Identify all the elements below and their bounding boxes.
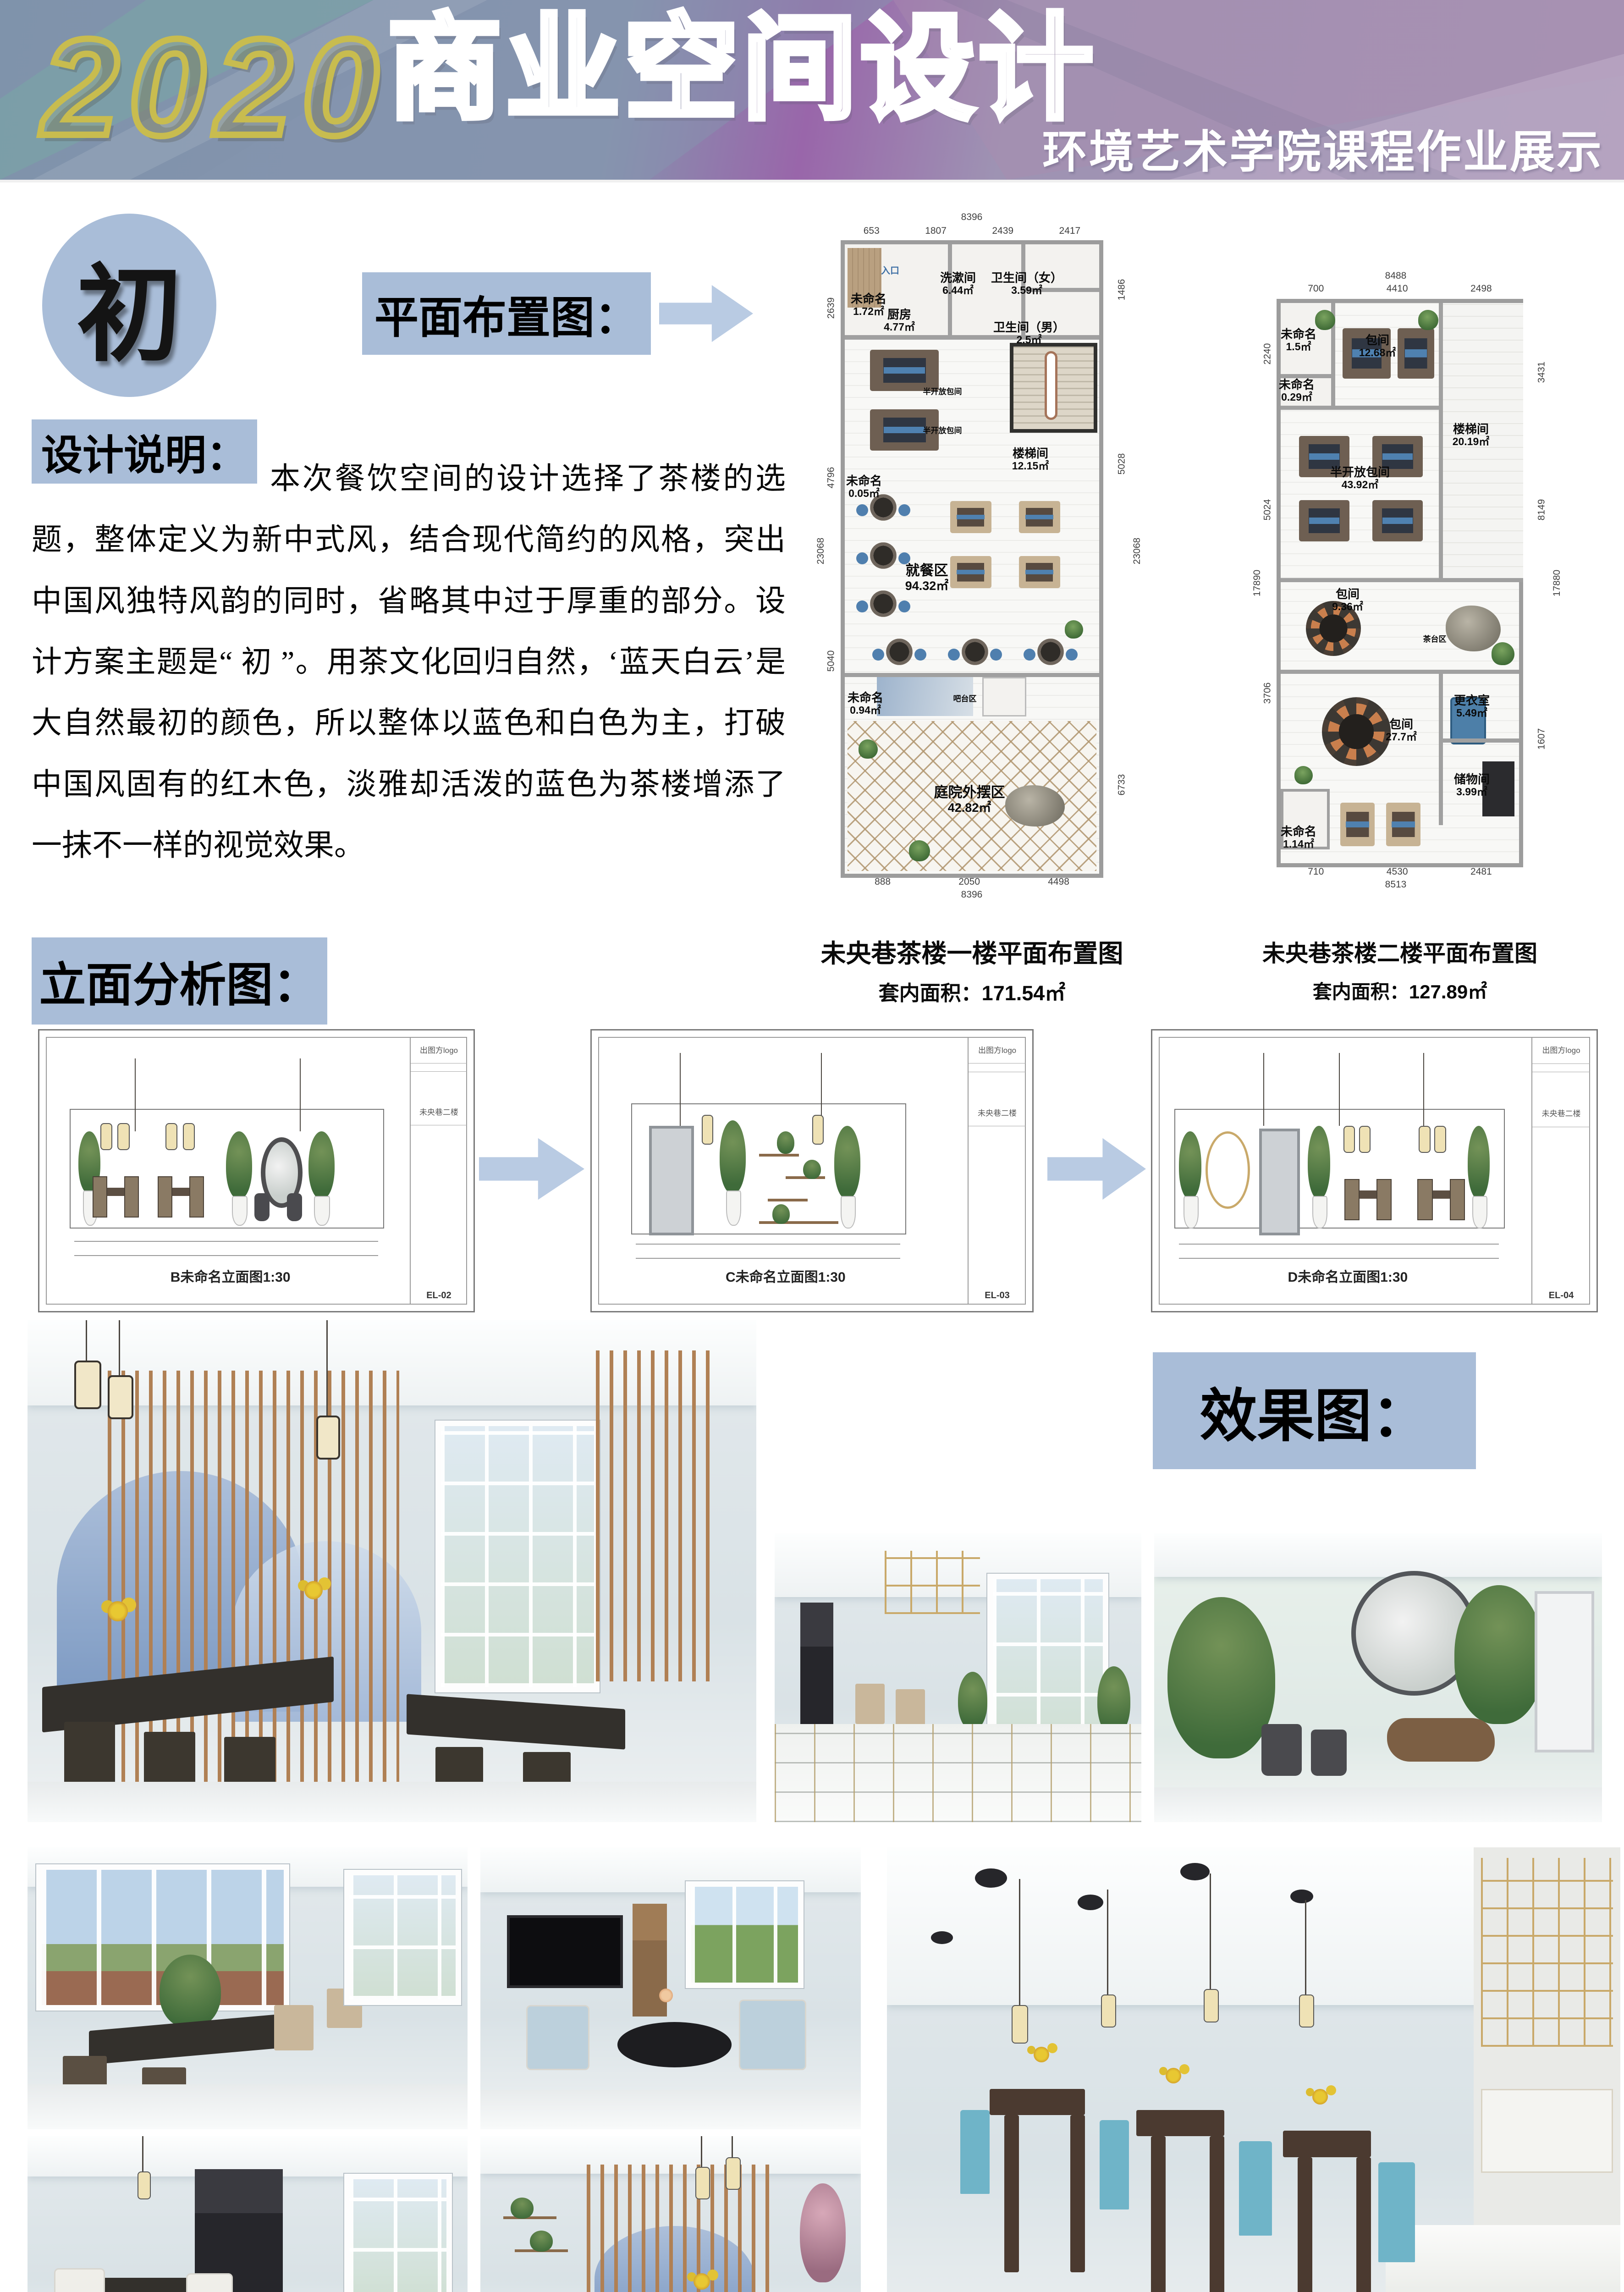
theme-badge: 初 xyxy=(42,214,216,397)
elevation-door xyxy=(1259,1129,1300,1235)
room-label: 吧台区 xyxy=(953,694,977,703)
fp2-plant xyxy=(1418,310,1438,330)
pendant-cord xyxy=(701,2136,702,2169)
table-leg xyxy=(1070,2115,1085,2273)
entry-label: 入口 xyxy=(881,266,899,276)
render-private-dining xyxy=(28,2136,468,2292)
room-label: 洗漱间6.44㎡ xyxy=(940,271,976,297)
dim-left: 4796 xyxy=(826,467,837,489)
dim-right: 1607 xyxy=(1536,728,1547,750)
fp1-stair-rail xyxy=(1045,351,1057,420)
lantern-pendant xyxy=(165,1123,178,1150)
fp2-table-group xyxy=(1386,803,1420,846)
pendant-cord xyxy=(142,2136,143,2174)
title-block: 出图方logo 未央巷二楼 EL-02 xyxy=(410,1037,467,1305)
gold-display-shelf xyxy=(1481,1858,1613,2047)
elevation-caption: C未命名立面图1:30 xyxy=(627,1266,944,1286)
yellow-flowers xyxy=(1034,2047,1049,2062)
dim-right: 1486 xyxy=(1116,279,1127,301)
elevation-stool xyxy=(254,1193,270,1221)
elevation-sheet-c: C未命名立面图1:30 出图方logo 未央巷二楼 EL-03 xyxy=(590,1029,1034,1312)
table-leg xyxy=(1210,2136,1224,2292)
room-label: 包间27.7㎡ xyxy=(1386,718,1417,743)
tall-table xyxy=(1283,2131,1371,2157)
pendant-cord xyxy=(1210,1873,1211,2000)
render-grand-tea-hall xyxy=(887,1847,1620,2292)
yellow-flowers xyxy=(108,1601,128,1621)
pendant-light xyxy=(1204,1989,1219,2022)
header-banner: 2020 商业空间设计 环境艺术学院课程作业展示 xyxy=(0,0,1624,182)
fp1-round-table xyxy=(886,639,913,665)
elevation-plant xyxy=(226,1131,252,1199)
shelf-plant xyxy=(777,1131,794,1154)
room-label: 未命名1.14㎡ xyxy=(1281,825,1316,850)
design-note-paragraph: 本次餐饮空间的设计选择了茶楼的选题，整体定义为新中式风，结合现代简约的风格，突出… xyxy=(32,448,786,876)
room-label: 卫生间（女）3.59㎡ xyxy=(991,271,1062,297)
dim-right: 3431 xyxy=(1536,362,1547,383)
fp2-tea-rock xyxy=(1446,606,1501,651)
dim-line xyxy=(1179,1244,1499,1245)
render-balcony-dining xyxy=(28,1847,468,2129)
table-leg xyxy=(1004,2115,1019,2273)
lantern-pendant xyxy=(183,1123,195,1150)
elevation-chair xyxy=(124,1176,139,1218)
dim-leader xyxy=(1263,1053,1264,1126)
armchair xyxy=(739,2000,806,2070)
elevation-plant xyxy=(1308,1126,1330,1199)
room-label: 茶台区 xyxy=(1423,635,1447,644)
window xyxy=(686,1881,803,1988)
white-chair xyxy=(186,2273,233,2292)
elevation-caption: B未命名立面图1:30 xyxy=(74,1266,387,1286)
fp2-table-group xyxy=(1398,328,1434,379)
shelf-plant xyxy=(772,1204,790,1224)
elevation-chair xyxy=(1450,1179,1465,1220)
plant xyxy=(160,1955,221,2028)
blue-chair xyxy=(960,2110,990,2194)
armchair xyxy=(526,2005,590,2070)
elevation-door xyxy=(649,1126,694,1235)
table-leg xyxy=(1151,2136,1166,2292)
dim-left: 2240 xyxy=(1262,343,1273,365)
floor-plan-1-caption: 未央巷茶楼一楼平面布置图 xyxy=(818,933,1126,970)
design-note-label: 设计说明： xyxy=(32,419,257,484)
fp1-rock-feature xyxy=(1005,785,1065,826)
lantern-pendant xyxy=(702,1115,713,1145)
fp2-table-group xyxy=(1372,500,1423,541)
dim-top-total: 8396 xyxy=(961,212,983,223)
room-label: 未命名1.5㎡ xyxy=(1281,328,1316,353)
blue-chair xyxy=(1239,2141,1272,2236)
elevation-stool xyxy=(287,1193,302,1221)
gold-rod-screen xyxy=(587,2165,769,2292)
elevation-vase xyxy=(232,1196,248,1226)
lantern-pendant xyxy=(1359,1126,1371,1153)
room-label: 就餐区94.32㎡ xyxy=(905,563,949,593)
floor xyxy=(1154,1787,1602,1822)
plant xyxy=(958,1672,987,1730)
dim-leader xyxy=(135,1058,136,1131)
fp1-bar-counter xyxy=(982,677,1026,716)
fp1-round-table xyxy=(870,590,897,617)
fp1-table-group xyxy=(950,556,991,588)
fp2-wall xyxy=(1281,406,1439,410)
dim-bottom-total: 8513 xyxy=(1385,879,1407,890)
floor-plan-2-area: 套内面积：127.89㎡ xyxy=(1251,976,1548,1004)
dim-leader xyxy=(1423,1053,1424,1126)
header-subtitle: 环境艺术学院课程作业展示 xyxy=(1042,116,1603,181)
wood-screen-panel xyxy=(800,1603,833,1741)
room-label: 包间12.68㎡ xyxy=(1359,334,1396,359)
render-hallway-glass xyxy=(775,1533,1141,1822)
dim-right-total: 23068 xyxy=(1132,538,1143,564)
pendant-cord xyxy=(326,1320,328,1421)
fp2-wall xyxy=(1281,578,1439,582)
elevation-chair xyxy=(1376,1179,1392,1220)
lantern-pendant xyxy=(100,1123,113,1150)
dim-right: 6733 xyxy=(1116,774,1127,796)
ceiling-disc-lamp xyxy=(931,1931,953,1944)
pendant-cord xyxy=(86,1320,87,1366)
plant-large xyxy=(1454,1585,1544,1724)
dim-top-total: 8488 xyxy=(1385,270,1407,281)
room-label: 卫生间（男）2.5㎡ xyxy=(993,321,1065,346)
fp1-table-group xyxy=(870,350,939,391)
elevation-chair xyxy=(93,1176,107,1218)
ceiling-disc-lamp xyxy=(975,1868,1007,1888)
elevation-plant xyxy=(1179,1131,1201,1199)
elevation-vase xyxy=(1312,1196,1327,1229)
ceiling-disc-lamp xyxy=(1078,1895,1103,1910)
fp1-table-group xyxy=(1019,501,1060,533)
lantern-pendant xyxy=(1434,1126,1446,1153)
ceiling-disc-lamp xyxy=(1290,1890,1313,1903)
dim-top-row: 653 1807 2439 2417 xyxy=(841,226,1103,237)
room-label: 未命名1.72㎡ xyxy=(851,292,886,318)
pendant-cord xyxy=(732,2136,733,2160)
tiled-floor xyxy=(775,1724,1141,1822)
elevation-vase xyxy=(1184,1196,1199,1229)
room-label: 半开放包间43.92㎡ xyxy=(1330,466,1390,491)
fp2-plant xyxy=(1492,642,1514,665)
arrow-right-icon xyxy=(479,1132,584,1206)
yellow-flowers xyxy=(1312,2089,1328,2105)
pendant-cord xyxy=(119,1320,120,1380)
room-label: 庭院外摆区42.82㎡ xyxy=(934,785,1005,815)
pendant-light xyxy=(1299,1994,1314,2028)
gold-ring-artwork xyxy=(1206,1131,1250,1209)
dining-table xyxy=(407,1694,625,1750)
hanging-shelf xyxy=(768,1199,807,1201)
room-label: 未命名0.94㎡ xyxy=(848,691,883,716)
lantern-pendant xyxy=(117,1123,130,1150)
dim-bottom-total: 8396 xyxy=(961,889,983,900)
blue-chair xyxy=(1378,2162,1415,2262)
pendant-cord xyxy=(1107,1890,1108,2005)
dim-top-row: 700 4410 2498 xyxy=(1277,283,1523,294)
fp2-table-group xyxy=(1299,500,1349,541)
dim-left: 5040 xyxy=(826,650,837,672)
dim-line xyxy=(636,1258,900,1259)
window xyxy=(435,1421,600,1692)
wall-shelf xyxy=(503,2216,556,2219)
dim-leader xyxy=(680,1053,681,1131)
header-year: 2020 xyxy=(42,0,388,174)
fp2-table-group xyxy=(1340,803,1375,846)
render-dining-screens xyxy=(28,1320,756,1822)
title-block: 出图方logo 未央巷二楼 EL-04 xyxy=(1531,1037,1590,1305)
hanging-shelf xyxy=(759,1154,798,1157)
theme-character: 初 xyxy=(77,229,182,382)
dim-leader xyxy=(300,1058,301,1131)
lantern-pendant xyxy=(1343,1126,1355,1153)
shelf-plant xyxy=(530,2231,553,2252)
elevation-vase xyxy=(726,1190,741,1226)
fp1-round-table xyxy=(870,542,897,569)
floor xyxy=(480,2090,861,2129)
dim-bottom-row: 888 2050 4498 xyxy=(841,876,1103,887)
elevation-vase xyxy=(841,1196,856,1229)
dim-left-total: 23068 xyxy=(815,538,826,564)
fp2-plant xyxy=(1294,766,1313,784)
chair xyxy=(274,2005,314,2050)
window xyxy=(344,1870,461,2005)
fp2-wall xyxy=(1439,674,1443,825)
elevation-sheet-d: D未命名立面图1:30 出图方logo 未央巷二楼 EL-04 xyxy=(1151,1029,1598,1312)
elevation-vase xyxy=(314,1196,330,1226)
chair xyxy=(855,1684,885,1724)
elevation-vase xyxy=(1472,1196,1487,1229)
fp1-table-group xyxy=(950,501,991,533)
ceiling xyxy=(480,1847,861,1892)
cushion xyxy=(659,1989,673,2002)
ceiling xyxy=(1154,1533,1602,1577)
dim-left-total: 17890 xyxy=(1252,570,1263,596)
dim-left: 3706 xyxy=(1262,683,1273,704)
blossom-plant xyxy=(800,2183,846,2282)
elevation-plant xyxy=(308,1131,335,1199)
fp1-round-table xyxy=(962,639,988,665)
lantern-lamp xyxy=(108,1375,133,1419)
tall-table xyxy=(1136,2110,1224,2136)
room-label: 包间9.36㎡ xyxy=(1332,588,1363,613)
floor xyxy=(28,1782,756,1822)
pendant-light xyxy=(1012,2005,1028,2044)
floor-plan-2-caption: 未央巷茶楼二楼平面布置图 xyxy=(1251,935,1548,968)
floor xyxy=(28,2084,468,2129)
render-section-label: 效果图： xyxy=(1153,1352,1476,1469)
elevation-chair xyxy=(158,1176,172,1218)
plant-large xyxy=(1167,1597,1275,1759)
room-label: 半开放包间 xyxy=(923,387,962,396)
bar-counter xyxy=(1386,2225,1620,2292)
dim-leader xyxy=(1339,1053,1340,1126)
dim-left: 5024 xyxy=(1262,499,1273,521)
dim-right: 5028 xyxy=(1116,453,1127,475)
stool xyxy=(1311,1730,1347,1776)
blue-chair xyxy=(1100,2120,1129,2209)
shelf-plant xyxy=(511,2198,534,2219)
fp2-wall xyxy=(1439,738,1519,743)
room-label: 半开放包间 xyxy=(923,426,962,435)
round-marble-table xyxy=(617,2022,732,2067)
elevation-caption: D未命名立面图1:30 xyxy=(1188,1266,1508,1286)
arrow-right-icon xyxy=(1047,1132,1146,1206)
render-screen-corridor xyxy=(480,2136,861,2292)
tall-table xyxy=(990,2089,1085,2115)
floor-plan-1-area: 套内面积：171.54㎡ xyxy=(818,976,1126,1006)
room-label: 楼梯间12.15㎡ xyxy=(1012,447,1049,472)
fp2-plant xyxy=(1315,310,1335,330)
fp1-plant xyxy=(1065,620,1083,639)
elevation-sheet-b: B未命名立面图1:30 出图方logo 未央巷二楼 EL-02 xyxy=(38,1029,475,1312)
tv-screen xyxy=(507,1915,623,1989)
chair xyxy=(64,1722,115,1792)
dim-left: 2639 xyxy=(826,298,837,319)
render-tea-corner xyxy=(1154,1533,1602,1822)
fp1-wall xyxy=(845,673,1099,677)
room-label: 未命名0.29㎡ xyxy=(1279,378,1315,403)
poster-canvas: 2020 商业空间设计 环境艺术学院课程作业展示 初 平面布置图： 本次餐饮空间… xyxy=(0,0,1624,2292)
table-leg xyxy=(1356,2157,1371,2292)
room-label: 未命名0.05㎡ xyxy=(846,474,882,500)
elevation-chair xyxy=(189,1176,204,1218)
dim-line xyxy=(636,1244,900,1245)
yellow-flowers xyxy=(1166,2068,1181,2083)
pendant-light xyxy=(138,2171,151,2199)
gold-pendant-frame xyxy=(885,1551,980,1614)
room-label: 储物间3.99㎡ xyxy=(1454,773,1490,798)
drawer-cabinet xyxy=(1481,2089,1613,2173)
stool xyxy=(1261,1724,1302,1776)
room-label: 更衣室5.49㎡ xyxy=(1454,694,1490,719)
lantern-lamp xyxy=(316,1416,341,1460)
fp1-plant xyxy=(859,739,878,759)
title-block: 出图方logo 未央巷二楼 EL-03 xyxy=(968,1037,1026,1305)
chair xyxy=(896,1689,925,1727)
dim-line xyxy=(74,1255,378,1256)
fp1-stairs xyxy=(1010,343,1097,433)
fp2-flower-table xyxy=(1322,697,1391,766)
lantern-pendant xyxy=(726,2157,740,2190)
lantern-pendant xyxy=(812,1115,824,1145)
fp1-plant xyxy=(909,840,930,861)
floor-plan-section-label: 平面布置图： xyxy=(362,272,651,355)
lantern-pendant xyxy=(695,2167,710,2199)
arrow-right-icon xyxy=(659,280,753,347)
dim-line xyxy=(1179,1258,1499,1259)
door xyxy=(1535,1591,1594,1752)
window xyxy=(344,2174,452,2292)
pendant-cord xyxy=(1019,1879,1020,2016)
elevation-chair xyxy=(1417,1179,1432,1220)
gold-rod-screen xyxy=(596,1350,712,1682)
pendant-cord xyxy=(1305,1900,1306,2005)
shelf-plant xyxy=(803,1160,820,1179)
fp1-round-table xyxy=(1037,639,1064,665)
elevation-section-label: 立面分析图： xyxy=(32,937,327,1025)
elevation-plant xyxy=(834,1126,861,1199)
lantern-pendant xyxy=(1419,1126,1430,1153)
pendant-light xyxy=(1101,1994,1116,2028)
header-title: 商业空间设计 xyxy=(387,0,1097,147)
elevation-plant xyxy=(720,1120,746,1193)
dim-right: 8149 xyxy=(1536,499,1547,521)
room-label: 楼梯间20.19㎡ xyxy=(1453,423,1490,448)
render-tv-lounge xyxy=(480,1847,861,2129)
table-leg xyxy=(1298,2157,1312,2292)
elevation-plant xyxy=(1468,1126,1490,1199)
hanging-shelf xyxy=(799,1221,838,1224)
lantern-lamp xyxy=(74,1361,101,1410)
white-chair xyxy=(54,2268,105,2292)
tea-table xyxy=(1387,1718,1494,1762)
fp1-table-group xyxy=(1019,556,1060,588)
dim-line xyxy=(74,1241,378,1242)
room-label: 厨房4.77㎡ xyxy=(884,308,915,333)
fp2-wall xyxy=(1281,670,1519,674)
yellow-flowers xyxy=(694,2273,710,2290)
elevation-chair xyxy=(1344,1179,1360,1220)
dim-right-total: 17880 xyxy=(1552,570,1563,596)
dim-bottom-row: 710 4530 2481 xyxy=(1277,866,1523,877)
